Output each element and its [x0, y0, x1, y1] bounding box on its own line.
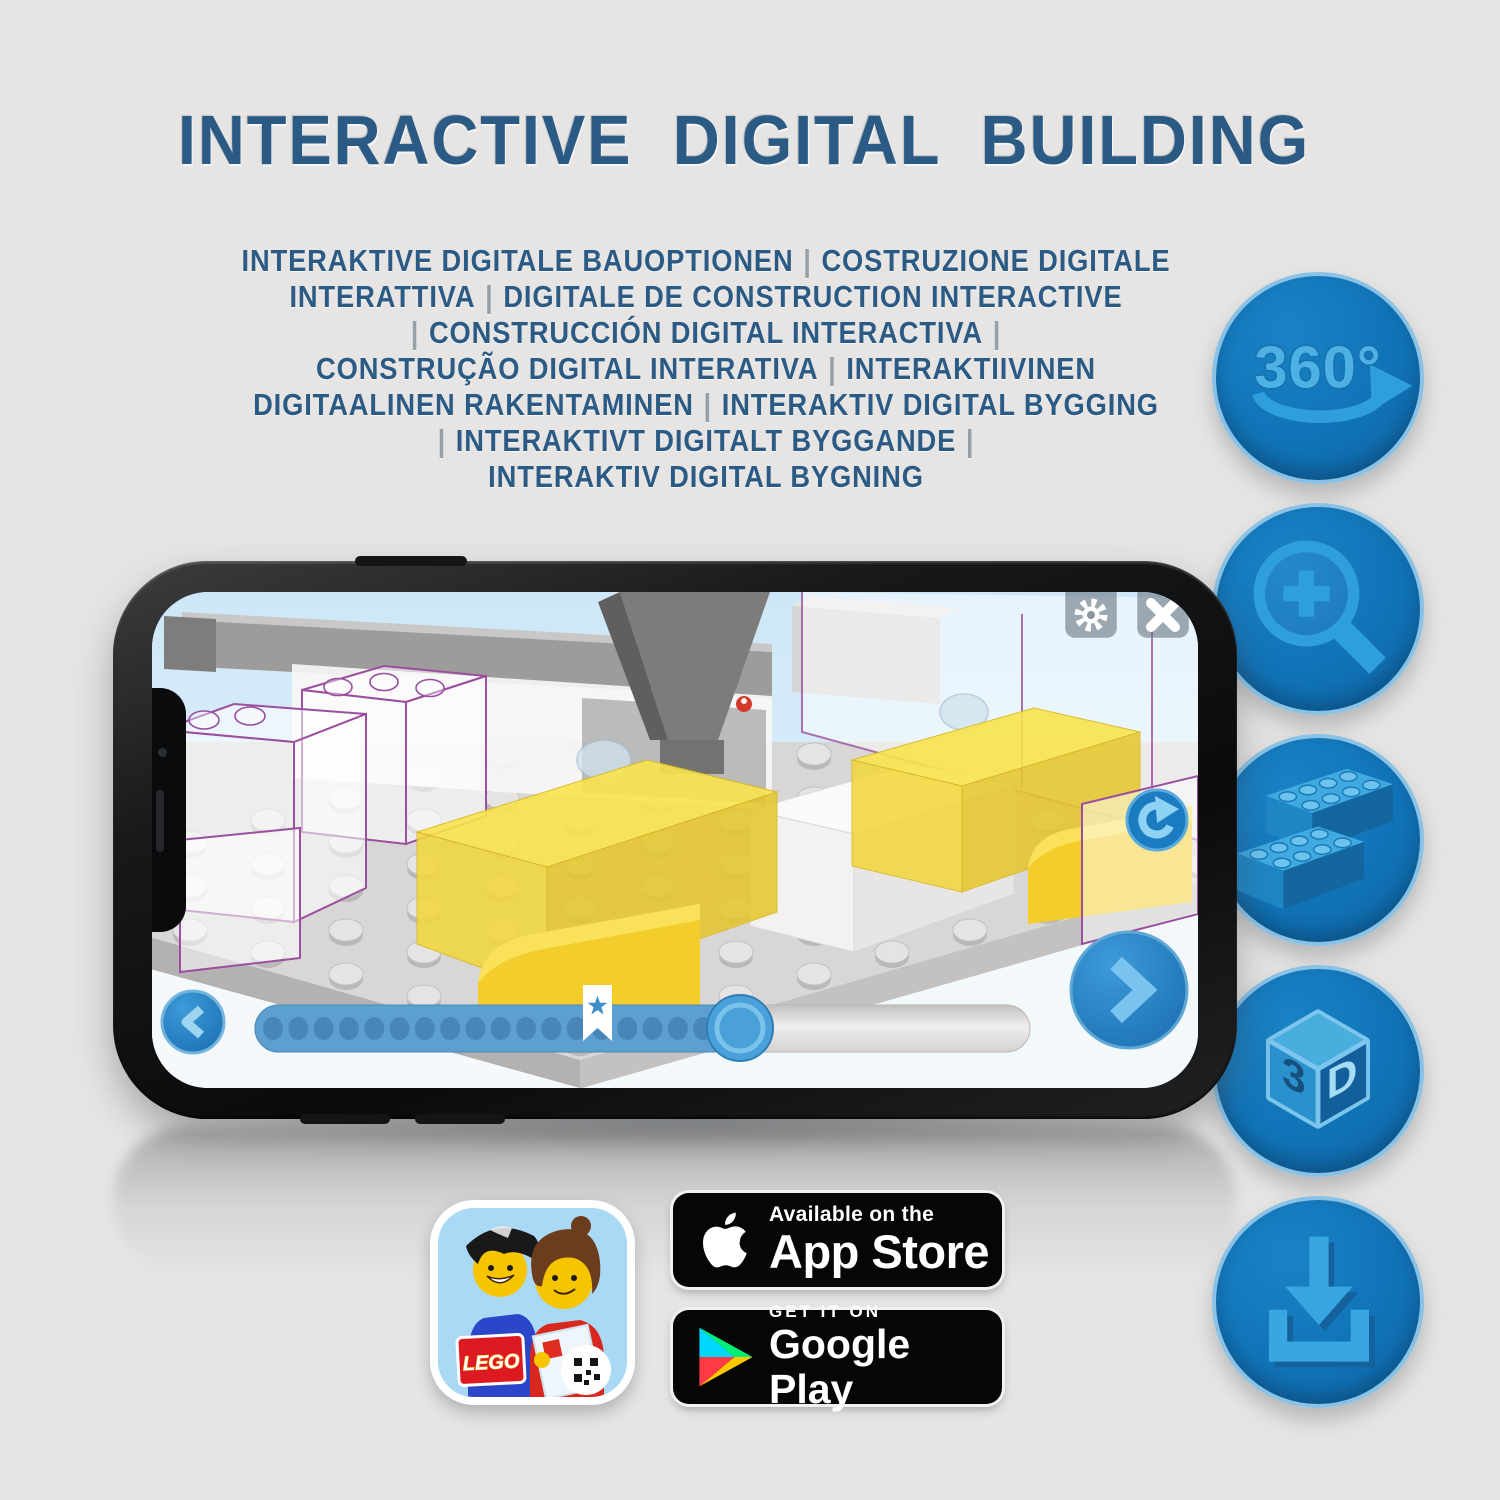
- app-store-badge[interactable]: Available on the App Store: [673, 1193, 1002, 1287]
- subtitle: INTERAKTIVE DIGITALE BAUOPTIONEN|COSTRUZ…: [46, 243, 1366, 495]
- phone-mockup: [113, 561, 1237, 1119]
- subtitle-line: INTERAKTIV DIGITAL BYGNING: [46, 459, 1366, 495]
- lego-app-icon[interactable]: LEGO: [430, 1200, 635, 1405]
- building-instructions-app: [152, 592, 1198, 1088]
- subtitle-line: DIGITAALINEN RAKENTAMINEN|INTERAKTIV DIG…: [46, 387, 1366, 423]
- front-camera: [158, 748, 167, 757]
- earpiece-speaker: [156, 790, 164, 852]
- reset-rotation-button[interactable]: [1127, 790, 1187, 850]
- 360-rotation-icon: 360°: [1212, 272, 1424, 484]
- zoom-in-icon: [1212, 503, 1424, 715]
- slider-thumb[interactable]: [707, 995, 773, 1061]
- subtitle-line: CONSTRUÇÃO DIGITAL INTERATIVA|INTERAKTII…: [46, 351, 1366, 387]
- subtitle-line: INTERAKTIVE DIGITALE BAUOPTIONEN|COSTRUZ…: [46, 243, 1366, 279]
- apple-logo-icon: [683, 1205, 769, 1275]
- next-step-button[interactable]: [1071, 932, 1187, 1048]
- page-title: INTERACTIVE DIGITAL BUILDING: [47, 100, 1442, 180]
- lego-logo: LEGO: [457, 1334, 525, 1385]
- phone-screen: [152, 592, 1198, 1088]
- previous-step-button[interactable]: [162, 991, 224, 1053]
- app-store-label: App Store: [769, 1227, 989, 1276]
- 3d-view-icon: 3 D: [1212, 965, 1424, 1177]
- volume-up-button: [300, 1114, 390, 1124]
- google-play-label: Google Play: [769, 1322, 992, 1412]
- google-play-tagline: GET IT ON: [769, 1302, 992, 1322]
- app-store-tagline: Available on the: [769, 1203, 989, 1227]
- subtitle-line: |CONSTRUCCIÓN DIGITAL INTERACTIVA|: [46, 315, 1366, 351]
- close-button[interactable]: [1137, 592, 1189, 638]
- poster: INTERACTIVE DIGITAL BUILDING INTERAKTIVE…: [0, 0, 1500, 1500]
- google-play-triangle-icon: [683, 1326, 769, 1388]
- phone-notch: [152, 688, 186, 932]
- subtitle-line: |INTERAKTIVT DIGITALT BYGGANDE|: [46, 423, 1366, 459]
- subtitle-line: INTERATTIVA|DIGITALE DE CONSTRUCTION INT…: [46, 279, 1366, 315]
- volume-down-button: [415, 1114, 505, 1124]
- red-accent-piece: [736, 696, 752, 712]
- svg-text:360°: 360°: [1254, 334, 1381, 401]
- power-button: [355, 556, 467, 566]
- feature-icon-column: 360°: [1212, 272, 1424, 1408]
- download-icon: [1212, 1196, 1424, 1408]
- brick-icon: [1212, 734, 1424, 946]
- google-play-badge[interactable]: GET IT ON Google Play: [673, 1310, 1002, 1404]
- settings-button[interactable]: [1065, 592, 1117, 638]
- svg-text:LEGO: LEGO: [462, 1350, 520, 1375]
